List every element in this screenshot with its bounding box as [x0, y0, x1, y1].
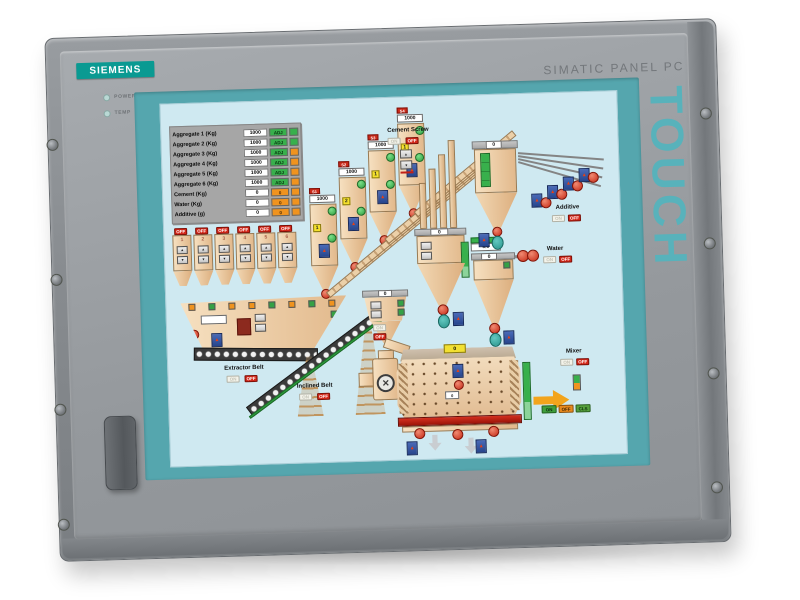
bin-number: 2 — [194, 236, 211, 243]
power-led-label: POWER — [114, 93, 136, 100]
valve-icon — [189, 330, 199, 340]
aggregate-bin-6: OFF 6 ▲ ▼ — [277, 225, 298, 286]
gate-open-button[interactable] — [370, 301, 381, 309]
mixer-state-indicator — [573, 374, 581, 390]
motor-icon: ▲ — [452, 364, 463, 378]
bin-number: 3 — [215, 236, 232, 243]
mixer-hold-value: 0 — [444, 344, 466, 354]
extractor-on-button[interactable]: ON — [226, 375, 239, 382]
water-pump-icon — [527, 250, 539, 262]
cement-screw-off-button[interactable]: OFF — [405, 137, 418, 144]
bin-cone — [173, 271, 192, 287]
gate-status-square — [398, 309, 405, 316]
drop-tube — [419, 183, 427, 229]
mixer-level-bar — [522, 362, 532, 420]
gate-open-button[interactable]: ▲ — [240, 244, 251, 252]
screw-icon — [58, 519, 70, 531]
motor-icon: ▲ — [453, 312, 464, 326]
usb-cover-handle[interactable] — [104, 416, 138, 491]
gate-status-square — [331, 330, 338, 337]
power-led-row: POWER — [103, 91, 136, 102]
motor-icon: ▲ — [503, 330, 514, 344]
setpoint-value[interactable]: 1000 — [244, 159, 268, 168]
temp-led-row: TEMP — [103, 108, 131, 119]
inclined-on-button[interactable]: ON — [299, 393, 312, 400]
butterfly-valve-icon — [489, 333, 501, 347]
temp-led-icon — [104, 110, 111, 117]
gate-open-button[interactable] — [255, 314, 266, 322]
aggregate-bin-4: OFF 4 ▲ ▼ — [235, 226, 256, 287]
bin-cone — [278, 268, 297, 284]
temp-led-label: TEMP — [115, 110, 131, 116]
adjust-button[interactable]: ADJ — [270, 158, 288, 167]
adjust-button[interactable]: ADJ — [271, 178, 289, 187]
row-label: Aggregate 2 (Kg) — [173, 140, 242, 148]
status-strip — [291, 188, 300, 196]
status-badge: 0 — [271, 188, 289, 197]
gate-close-button[interactable]: ▼ — [240, 254, 251, 262]
mixer-drum-value: 0 — [445, 391, 459, 399]
gate-status-square — [328, 300, 335, 307]
row-label: Aggregate 5 (Kg) — [173, 170, 242, 178]
gate-status-square — [288, 301, 295, 308]
motor-icon: ▲ — [348, 217, 359, 231]
aggregate-bin-3: OFF 3 ▲ ▼ — [214, 227, 235, 288]
setpoint-value[interactable]: 1000 — [243, 129, 267, 138]
gate-close-button[interactable]: ▼ — [177, 256, 188, 264]
screw-icon — [54, 404, 66, 416]
gate-status-square — [228, 303, 235, 310]
touch-label: TOUCH — [639, 85, 698, 269]
discharge-arrow-icon — [428, 434, 441, 450]
additive-pump-icon — [588, 172, 599, 183]
gate-status-square — [188, 304, 195, 311]
drum-end-hatch — [398, 363, 408, 413]
discharge-chute — [237, 318, 251, 335]
motor-icon: ▲ — [478, 233, 489, 247]
status-strip — [290, 168, 299, 176]
silo-tag: S2 — [338, 161, 349, 167]
cement-level-bar — [461, 242, 470, 278]
row-label: Water (Kg) — [174, 200, 243, 208]
extractor-belt-label: Extractor Belt — [224, 365, 264, 372]
gate-status-square — [208, 303, 215, 310]
gate-open-button[interactable] — [421, 242, 432, 250]
silo-setpoint[interactable]: 1000 — [397, 114, 423, 123]
gate-status-square — [331, 321, 338, 328]
additive-level-bar — [480, 153, 491, 187]
bin-cone — [194, 270, 213, 286]
aggregate-bin-2: OFF 2 ▲ ▼ — [193, 227, 214, 288]
bin-number: 5 — [257, 234, 274, 241]
mixer-gate-on-button[interactable]: ON — [541, 405, 556, 413]
screw-down-button[interactable]: ▼ — [400, 160, 412, 169]
mixer-gate-cls-button[interactable]: CLS — [575, 404, 590, 412]
gate-close-button[interactable]: ▼ — [261, 253, 272, 261]
row-label: Aggregate 6 (Kg) — [174, 180, 243, 188]
gate-status-square — [308, 300, 315, 307]
row-label: Aggregate 1 (Kg) — [172, 130, 241, 138]
row-label: Aggregate 4 (Kg) — [173, 160, 242, 168]
row-label: Additive (g) — [175, 210, 244, 218]
gate-close-button[interactable] — [421, 252, 432, 260]
butterfly-valve-icon — [491, 236, 503, 250]
gate-close-button[interactable]: ▼ — [282, 253, 293, 261]
discharge-valve-icon — [452, 429, 463, 440]
sequence-number: 1 — [313, 224, 321, 232]
actual-value: 0 — [246, 208, 270, 217]
bin-cone — [215, 270, 234, 286]
sequence-number: 1 — [371, 170, 379, 178]
gate-status-square — [268, 301, 275, 308]
extractor-belt-conveyor — [194, 348, 318, 362]
water-off-button[interactable]: OFF — [559, 256, 572, 263]
gate-status-square — [397, 300, 404, 307]
silo-setpoint[interactable]: 1000 — [309, 195, 335, 204]
row-label: Cement (Kg) — [174, 190, 243, 198]
motor-icon: ▲ — [319, 244, 330, 258]
aggregate-bin-1: OFF 1 ▲ ▼ — [172, 228, 193, 289]
drop-tube — [428, 169, 437, 229]
status-strip — [290, 148, 299, 156]
status-badge: 0 — [272, 208, 290, 217]
additive-off-button[interactable]: OFF — [568, 214, 581, 221]
water-weigher-cone — [474, 279, 515, 324]
discharge-valve-icon — [414, 428, 425, 439]
extractor-off-button[interactable]: OFF — [244, 375, 257, 382]
gate-status-square — [248, 302, 255, 309]
additive-weigher-cone — [475, 192, 518, 229]
front-bezel: SIEMENS POWER TEMP SIMATIC PANEL PC TOUC… — [60, 33, 702, 539]
drum-end-hatch — [509, 360, 519, 410]
gate-status-square — [503, 261, 510, 268]
water-on-button[interactable]: ON — [543, 256, 556, 263]
screw-up-button[interactable]: ▲ — [400, 149, 412, 158]
gate-close-button[interactable]: ▼ — [219, 255, 230, 263]
screw-icon — [46, 139, 58, 151]
gate-open-button[interactable]: ▲ — [198, 245, 209, 253]
batch-table: Aggregate 1 (Kg)1000ADJ Aggregate 2 (Kg)… — [169, 123, 304, 225]
mixer-inlet — [378, 350, 394, 359]
drop-tube — [448, 140, 458, 228]
setpoint-value[interactable]: 1000 — [244, 149, 268, 158]
drop-tube — [438, 154, 447, 228]
mixer-gate-off-button[interactable]: OFF — [558, 405, 573, 413]
setpoint-value[interactable]: 1000 — [244, 168, 268, 177]
aggregate-bin-5: OFF 5 ▲ ▼ — [256, 225, 277, 286]
screw-status-bar — [400, 171, 413, 173]
gate-close-button[interactable] — [371, 310, 382, 318]
hopper-display — [201, 315, 227, 325]
touch-branding: TOUCH — [643, 77, 699, 408]
inclined-belt-label: Inclined Belt — [297, 383, 333, 390]
motor-icon: ▲ — [407, 441, 418, 455]
cement-screw-label: Cement Screw — [387, 127, 429, 134]
cement-silo-s3: S3 1000 1 ▲ — [367, 134, 397, 245]
aggregate-discharge-on-button[interactable]: ON — [373, 324, 386, 331]
butterfly-valve-icon — [438, 314, 450, 328]
status-strip — [289, 128, 298, 136]
gate-close-button[interactable]: ▼ — [198, 255, 209, 263]
mixer-off-button[interactable]: OFF — [576, 358, 589, 365]
status-strip — [290, 158, 299, 166]
silo-setpoint[interactable]: 1000 — [338, 168, 364, 177]
silo-tag: S4 — [397, 107, 408, 113]
collecting-hopper: ▲ — [180, 295, 348, 354]
motor-icon: ▲ — [377, 190, 388, 204]
bin-number: 1 — [173, 237, 190, 244]
screen-surround: Aggregate 1 (Kg)1000ADJ Aggregate 2 (Kg)… — [134, 77, 650, 480]
status-strip — [291, 198, 300, 206]
water-label: Water — [547, 246, 564, 252]
status-strip — [291, 178, 300, 186]
model-label: SIMATIC PANEL PC — [543, 59, 684, 77]
motor-icon: ▲ — [211, 333, 222, 347]
gate-status-square — [331, 311, 338, 318]
additive-on-button[interactable]: ON — [552, 215, 565, 222]
status-badge: 0 — [271, 198, 289, 207]
cement-weigher-cone — [417, 263, 466, 306]
gate-open-button[interactable]: ▲ — [177, 246, 188, 254]
cement-silo-s1: S1 1000 1 ▲ — [309, 187, 339, 298]
inclined-off-button[interactable]: OFF — [317, 393, 330, 400]
motor-icon: ▲ — [475, 439, 486, 453]
sequence-number: 2 — [342, 197, 350, 205]
adjust-button[interactable]: ADJ — [270, 148, 288, 157]
gate-close-button[interactable] — [255, 324, 266, 332]
touchscreen[interactable]: Aggregate 1 (Kg)1000ADJ Aggregate 2 (Kg)… — [159, 90, 628, 467]
actual-value: 0 — [245, 188, 269, 197]
cement-screw-on-button[interactable]: ON — [387, 138, 400, 145]
actual-value: 0 — [245, 198, 269, 207]
bin-number: 6 — [278, 234, 295, 241]
aggregate-weigher-value: 0 — [378, 290, 392, 297]
status-strip — [289, 138, 298, 146]
row-label: Aggregate 3 (Kg) — [173, 150, 242, 158]
gate-open-button[interactable]: ▲ — [282, 243, 293, 251]
setpoint-value[interactable]: 1000 — [245, 178, 269, 187]
cement-silo-s2: S2 1000 2 ▲ — [338, 161, 368, 272]
bin-number: 4 — [236, 235, 253, 242]
discharge-valve-icon — [488, 426, 499, 437]
adjust-button[interactable]: ADJ — [270, 168, 288, 177]
mixer-label: Mixer — [566, 348, 582, 354]
simatic-panel-pc: SIEMENS POWER TEMP SIMATIC PANEL PC TOUC… — [44, 18, 731, 562]
adjust-button[interactable]: ADJ — [269, 138, 287, 147]
additive-label: Additive — [556, 204, 580, 211]
power-led-icon — [103, 94, 110, 101]
adjust-button[interactable]: ADJ — [269, 128, 287, 137]
mixer-on-button[interactable]: ON — [560, 359, 573, 366]
siemens-logo: SIEMENS — [76, 61, 154, 79]
bin-cone — [236, 269, 255, 285]
silo-tag: S3 — [367, 134, 378, 140]
silo-tag: S1 — [309, 188, 320, 194]
bin-cone — [257, 268, 276, 284]
status-strip — [292, 208, 301, 216]
setpoint-value[interactable]: 1000 — [243, 139, 267, 148]
gate-open-button[interactable]: ▲ — [261, 243, 272, 251]
gate-open-button[interactable]: ▲ — [219, 245, 230, 253]
screw-icon — [50, 274, 62, 286]
